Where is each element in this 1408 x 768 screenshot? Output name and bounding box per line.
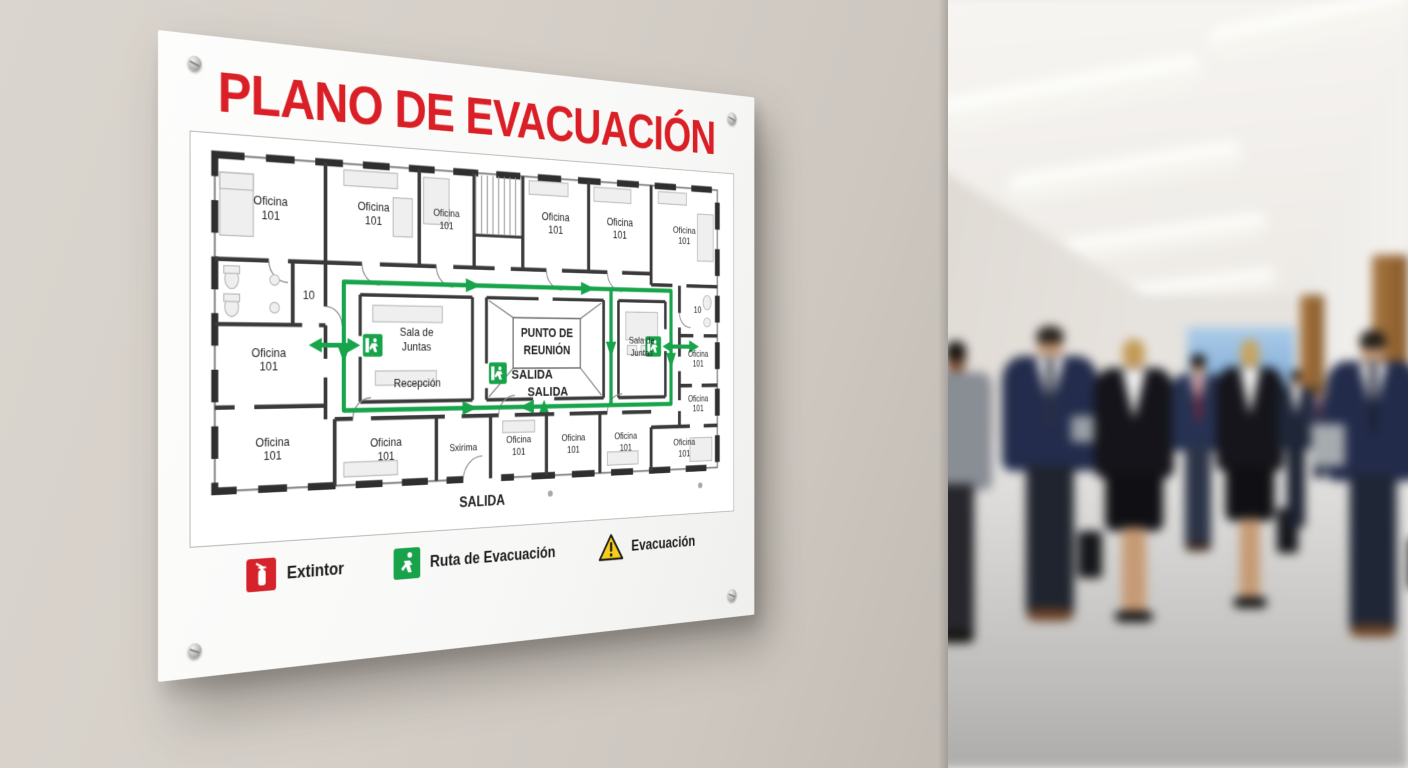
room-label-oficina: 101 <box>263 449 282 463</box>
exit-running-man-icon <box>394 547 421 580</box>
room-label-recepcion: Recepción <box>394 376 441 390</box>
room-label-10: 10 <box>694 306 702 316</box>
room-label-sala-juntas: Juntas <box>402 340 431 353</box>
fire-extinguisher-icon <box>247 557 277 592</box>
room-label-oficina: Oficina <box>433 208 459 221</box>
room-label-oficina: Oficina <box>562 433 586 444</box>
room-label-oficina: Oficina <box>255 435 289 450</box>
room-label-oficina: Oficina <box>358 199 390 214</box>
floor-plan-frame: Oficina 101 Oficina 101 Oficina 101 Ofic… <box>190 130 734 548</box>
room-label-oficina: 101 <box>512 446 525 457</box>
standoff-screw <box>188 55 202 71</box>
hallway-background <box>880 0 1408 768</box>
room-label-oficina: 101 <box>260 359 279 373</box>
room-label-oficina: Oficina <box>673 437 695 448</box>
room-label-sala-juntas: Juntas <box>631 348 654 358</box>
evacuation-sign-panel: PLANO DE EVACUACIÓN <box>158 30 754 682</box>
standoff-screw <box>727 112 736 125</box>
salida-label-bottom: SALIDA <box>459 492 505 511</box>
room-label-oficina: Oficina <box>607 216 633 230</box>
room-label-oficina: 101 <box>679 448 691 459</box>
room-label-oficina: Oficina <box>542 210 570 224</box>
person-woman-briefcase <box>1094 343 1174 619</box>
room-label-oficina: 101 <box>567 444 580 455</box>
room-label-oficina: Oficina <box>253 193 288 209</box>
room-label-10: 10 <box>303 288 315 302</box>
room-label-oficina: 101 <box>613 228 627 241</box>
room-label-oficina: 101 <box>365 213 382 227</box>
legend-item-evacuacion: Evacuación <box>598 527 695 563</box>
standoff-screw <box>188 643 202 659</box>
salida-label-green: SALIDA <box>528 384 569 400</box>
room-label-oficina: Oficina <box>673 225 696 236</box>
meeting-point-label: PUNTO DE <box>521 325 573 340</box>
exit-sign-icon <box>489 362 507 384</box>
room-label-oficina: 101 <box>693 360 704 369</box>
legend-label: Ruta de Evacuación <box>430 543 556 571</box>
floor-plan: Oficina 101 Oficina 101 Oficina 101 Ofic… <box>200 140 728 542</box>
room-label-oficina: Oficina <box>688 395 709 405</box>
frame-dot <box>548 490 553 496</box>
legend-label: Evacuación <box>631 532 695 554</box>
person-man-tablet <box>1326 334 1408 634</box>
room-label-oficina: 101 <box>261 208 280 223</box>
room-label-oficina: Oficina <box>251 346 286 360</box>
photo-scene: PLANO DE EVACUACIÓN <box>0 0 1408 768</box>
room-label-sala-juntas: Sala de <box>629 336 655 346</box>
legend-item-ruta: Ruta de Evacuación <box>394 537 555 580</box>
room-label-oficina: 101 <box>548 223 563 236</box>
room-label-oficina: 101 <box>378 449 395 463</box>
warning-triangle-icon <box>598 532 623 563</box>
legend-item-extintor: Extintor <box>247 553 344 593</box>
exit-sign-icon <box>363 334 383 357</box>
meeting-point-label: REUNIÓN <box>524 342 571 357</box>
frame-dot <box>698 482 702 488</box>
room-label-oficina: Oficina <box>614 431 637 442</box>
room-label-oficina: 101 <box>620 442 632 453</box>
salida-label-black: SALIDA <box>512 367 553 383</box>
room-label-oficina: Oficina <box>506 434 531 446</box>
person-woman-blonde <box>1216 343 1284 605</box>
room-label-oficina: Oficina <box>370 435 402 449</box>
hallway-blur-layer <box>880 0 1408 768</box>
room-label-oficina: 101 <box>678 236 690 247</box>
room-label-oficina: Oficina <box>688 350 709 359</box>
room-label-garbled: Sxirima <box>449 442 477 454</box>
legend-label: Extintor <box>287 559 344 583</box>
room-label-oficina: 101 <box>439 220 453 232</box>
standoff-screw <box>727 589 736 602</box>
room-label-oficina: 101 <box>693 405 704 414</box>
room-label-sala-juntas: Sala de <box>400 326 434 339</box>
